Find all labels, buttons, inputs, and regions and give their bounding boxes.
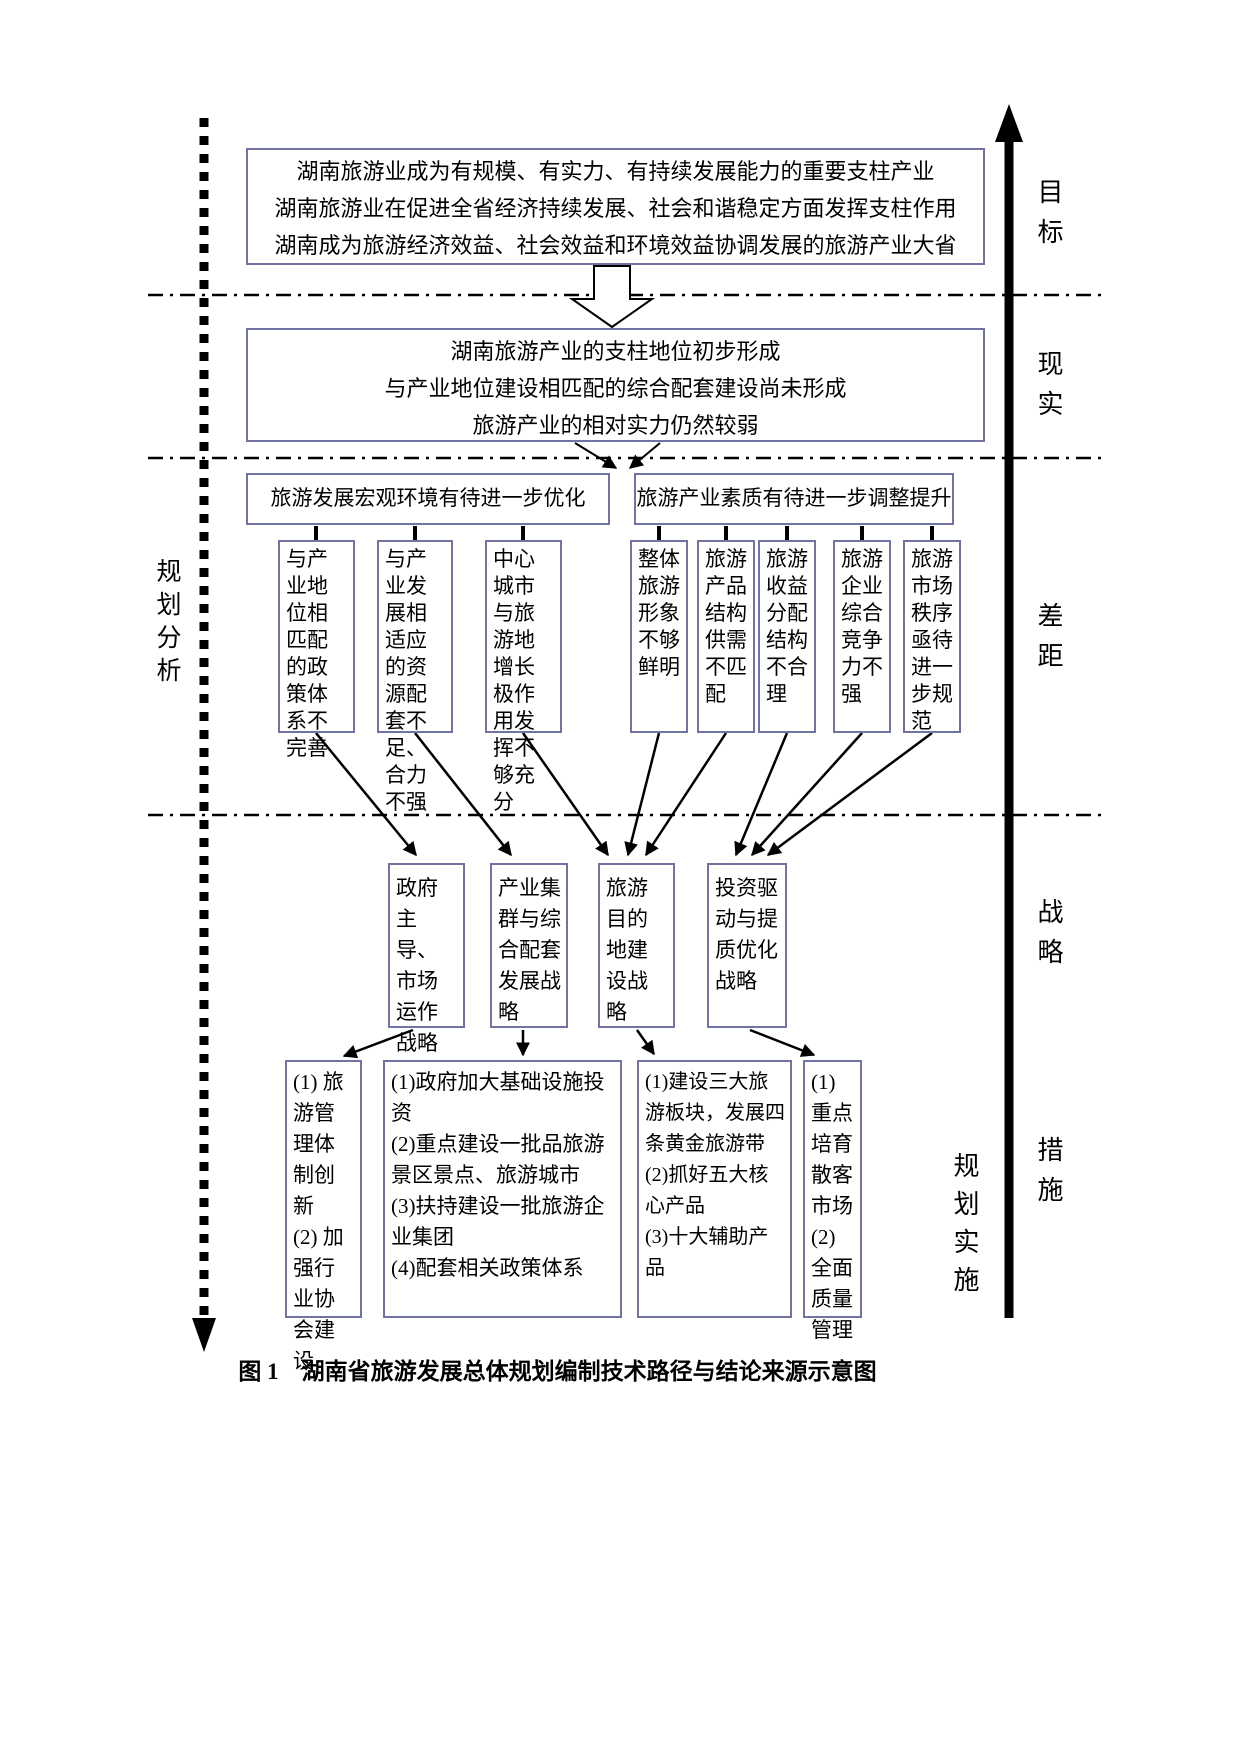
- strategy-government-led: 政府主导、市场运作战略: [388, 863, 465, 1028]
- measure-box-products: (1)建设三大旅游板块，发展四条黄金旅游带 (2)抓好五大核心产品 (3)十大辅…: [637, 1060, 792, 1318]
- gap-item-product-structure: 旅游产品结构供需不匹配: [697, 540, 755, 733]
- gap-item-policy-system: 与产业地位相匹配的政策体系不完善: [278, 540, 355, 733]
- measure-box-institution: (1) 旅游管理体制创新 (2) 加强行业协会建设: [285, 1060, 362, 1318]
- goal-line: 湖南旅游业成为有规模、有实力、有持续发展能力的重要支柱产业: [248, 153, 983, 190]
- section-label-gap: 差距: [1030, 602, 1067, 682]
- strategy-investment-driven: 投资驱动与提质优化战略: [707, 863, 787, 1028]
- reality-line: 与产业地位建设相匹配的综合配套建设尚未形成: [248, 370, 983, 407]
- gap-header-industry-quality: 旅游产业素质有待进一步调整提升: [634, 473, 954, 525]
- gap-item-growth-pole: 中心城市与旅游地增长极作用发挥不够充分: [485, 540, 562, 733]
- measure-item: (1) 旅游管理体制创新: [293, 1067, 355, 1222]
- goal-line: 湖南旅游业在促进全省经济持续发展、社会和谐稳定方面发挥支柱作用: [248, 190, 983, 227]
- measure-item: (1)政府加大基础设施投资: [391, 1067, 615, 1129]
- measure-item: (1)建设三大旅游板块，发展四条黄金旅游带: [645, 1067, 785, 1160]
- measure-item: (4)配套相关政策体系: [391, 1253, 615, 1284]
- section-label-reality: 现实: [1030, 350, 1067, 430]
- gap-header-macro-environment: 旅游发展宏观环境有待进一步优化: [246, 473, 610, 525]
- measure-item: (3)扶持建设一批旅游企业集团: [391, 1191, 615, 1253]
- planning-analysis-arrow: [192, 118, 216, 1352]
- gap-item-overall-image: 整体旅游形象不够鲜明: [630, 540, 688, 733]
- goal-to-reality-block-arrow: [572, 266, 652, 327]
- measure-item: (2)重点建设一批品旅游景区景点、旅游城市: [391, 1129, 615, 1191]
- planning-implementation-arrow: [995, 104, 1023, 1318]
- gap-item-market-order: 旅游市场秩序亟待进一步规范: [903, 540, 961, 733]
- measure-box-infrastructure: (1)政府加大基础设施投资 (2)重点建设一批品旅游景区景点、旅游城市 (3)扶…: [383, 1060, 622, 1318]
- figure-caption: 图 1 湖南省旅游发展总体规划编制技术路径与结论来源示意图: [150, 1352, 965, 1386]
- gap-header-connectors: [316, 526, 932, 541]
- planning-flow-diagram: 湖南旅游业成为有规模、有实力、有持续发展能力的重要支柱产业 湖南旅游业在促进全省…: [0, 0, 1241, 1754]
- reality-line: 湖南旅游产业的支柱地位初步形成: [248, 333, 983, 370]
- strategy-industry-cluster: 产业集群与综合配套发展战略: [490, 863, 568, 1028]
- right-axis-label-planning-implementation: 规划实施: [946, 1152, 983, 1304]
- strategy-destination-construction: 旅游目的地建设战略: [598, 863, 675, 1028]
- section-label-goal: 目标: [1030, 178, 1067, 258]
- measure-item: (3)十大辅助产品: [645, 1222, 785, 1284]
- gap-item-revenue-distribution: 旅游收益分配结构不合理: [758, 540, 816, 733]
- measure-item: (1)重点培育散客市场(2)全面质量管理: [811, 1067, 855, 1346]
- gap-item-enterprise-competitiveness: 旅游企业综合竞争力不强: [833, 540, 891, 733]
- section-label-measure: 措施: [1030, 1136, 1067, 1216]
- measure-box-market-quality: (1)重点培育散客市场(2)全面质量管理: [803, 1060, 862, 1318]
- reality-to-gap-arrows: [575, 443, 660, 468]
- left-axis-label-planning-analysis: 规划分析: [148, 558, 184, 690]
- goal-line: 湖南成为旅游经济效益、社会效益和环境效益协调发展的旅游产业大省: [248, 227, 983, 264]
- goal-box: 湖南旅游业成为有规模、有实力、有持续发展能力的重要支柱产业 湖南旅游业在促进全省…: [246, 148, 985, 265]
- section-label-strategy: 战略: [1030, 898, 1067, 978]
- measure-item: (2)抓好五大核心产品: [645, 1160, 785, 1222]
- reality-line: 旅游产业的相对实力仍然较弱: [248, 407, 983, 444]
- reality-box: 湖南旅游产业的支柱地位初步形成 与产业地位建设相匹配的综合配套建设尚未形成 旅游…: [246, 328, 985, 442]
- gap-item-resource-support: 与产业发展相适应的资源配套不足、合力不强: [377, 540, 453, 733]
